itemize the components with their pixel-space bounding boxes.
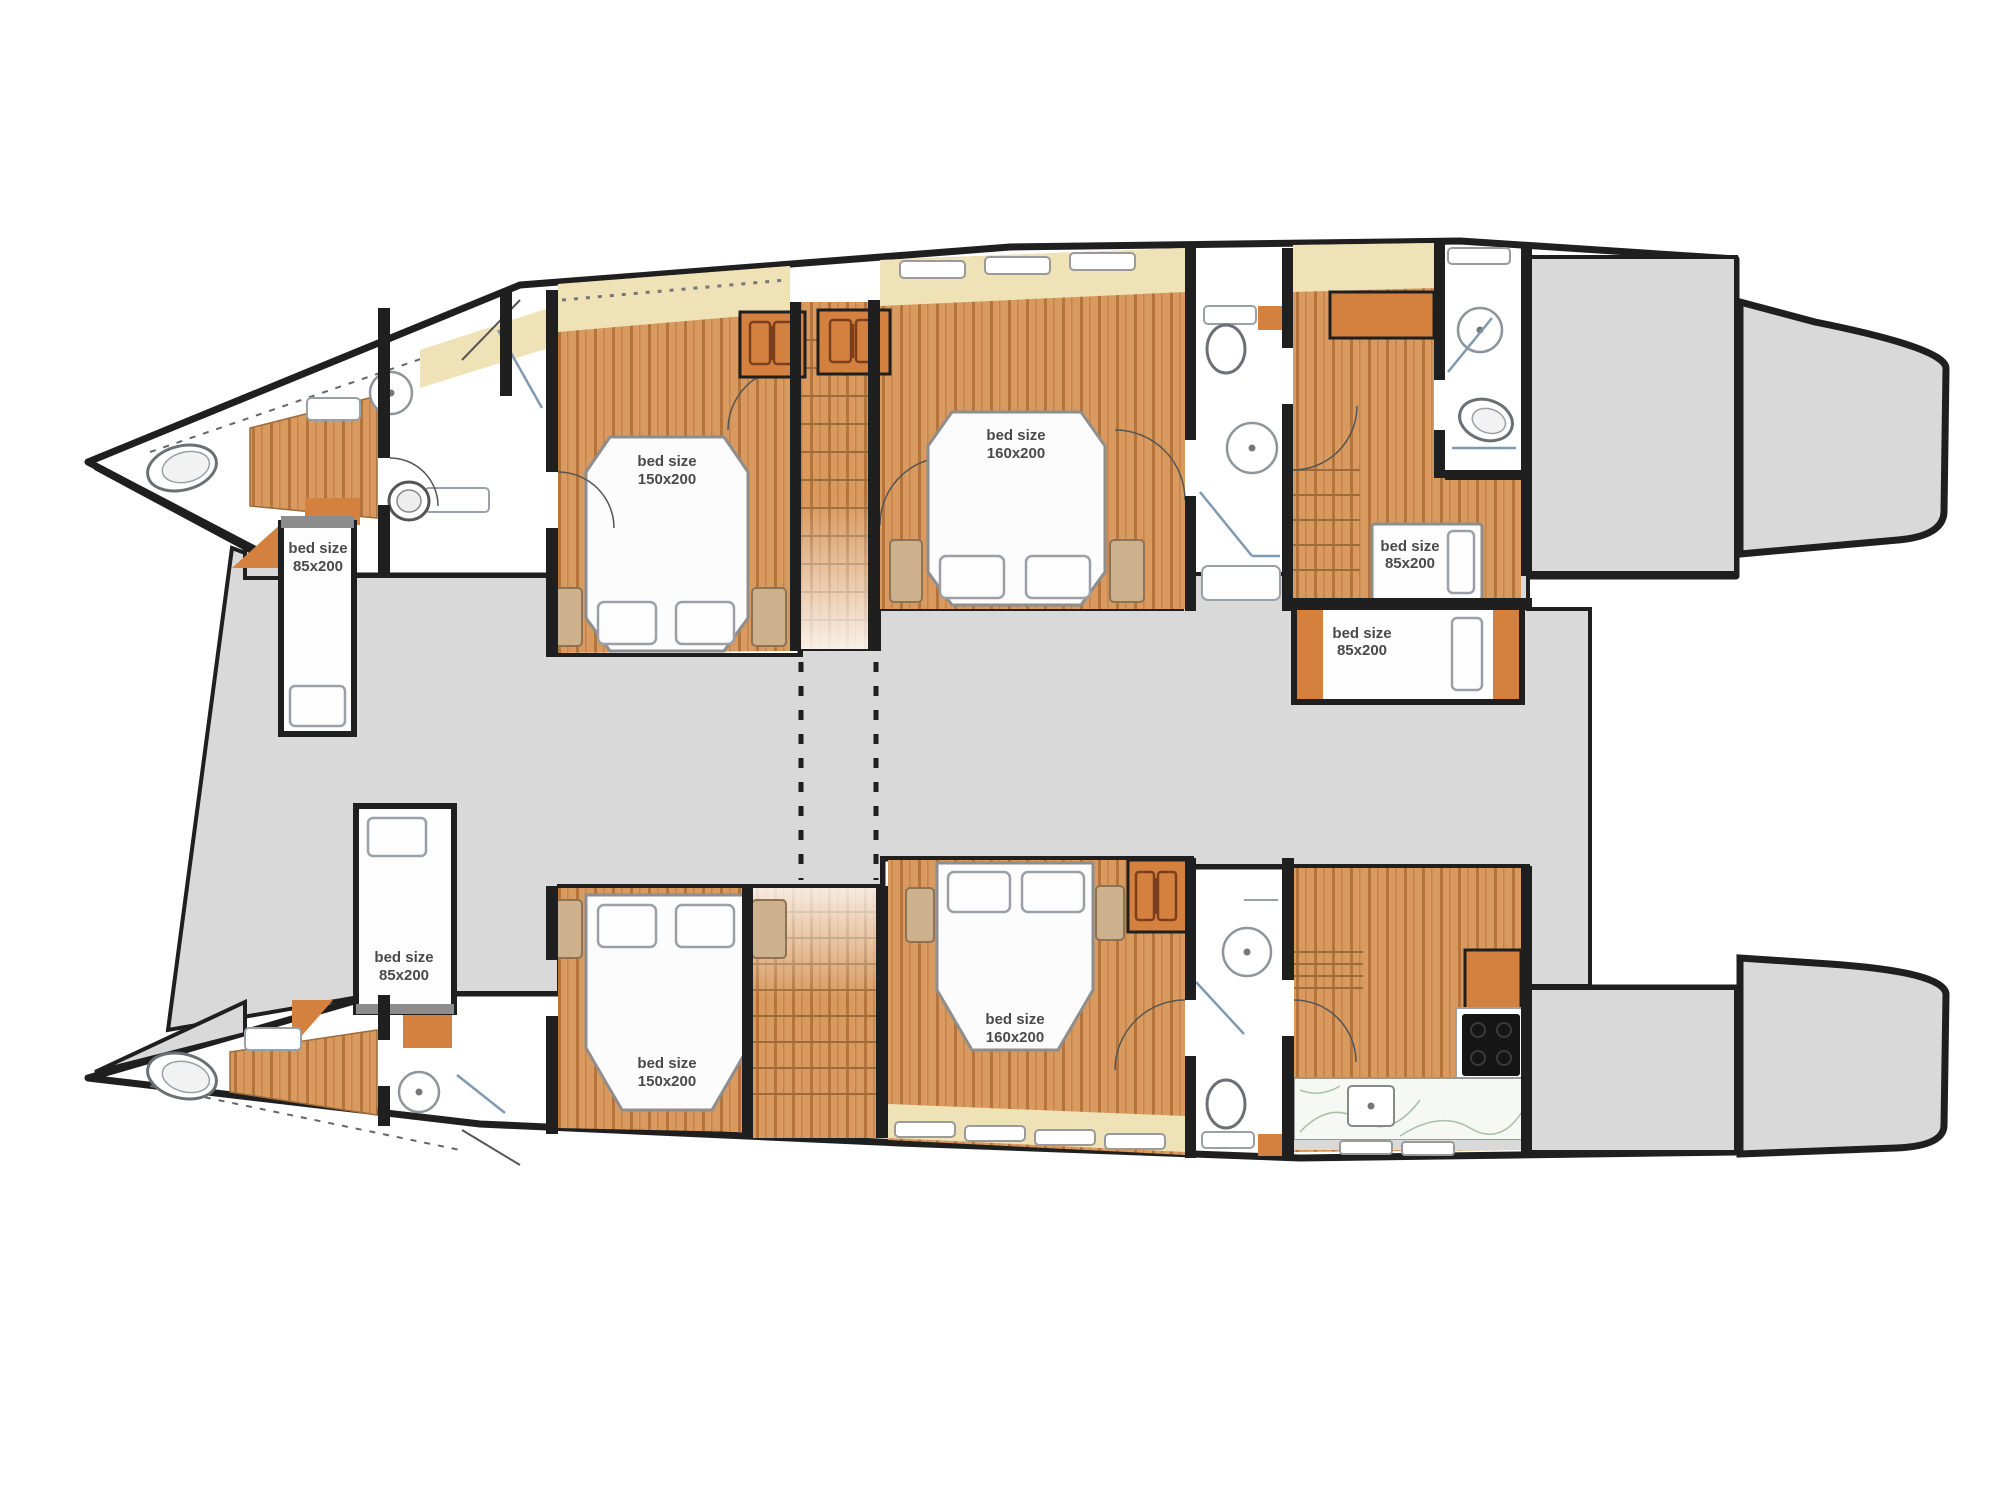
port-stairs-fade xyxy=(801,500,868,649)
stbd-wardrobe-aft xyxy=(1128,860,1188,932)
bed-size-label: bed size xyxy=(1380,538,1439,555)
stbd-fwd-bath-shower-wall xyxy=(462,1130,520,1165)
pillow xyxy=(676,602,734,644)
bed-size-value: 85x200 xyxy=(1385,555,1435,572)
port-bow-skylight xyxy=(307,398,360,420)
nightstand xyxy=(752,900,786,958)
bed-size-value: 150x200 xyxy=(638,471,696,488)
cooktop-icon xyxy=(1462,1014,1520,1076)
sink-drain-dot xyxy=(1368,1103,1375,1110)
nightstand xyxy=(906,888,934,942)
port-bow-single-bed: bed size 85x200 xyxy=(281,516,354,734)
nightstand xyxy=(752,588,786,646)
bed-size-label: bed size xyxy=(986,427,1045,444)
stbd-bow-single-bed: bed size 85x200 xyxy=(356,806,454,1014)
galley xyxy=(1294,868,1526,1155)
bed-size-value: 85x200 xyxy=(379,967,429,984)
port-stern-wardrobe xyxy=(1330,292,1434,338)
toilet-tank xyxy=(1202,1132,1254,1148)
bed-size-label: bed size xyxy=(288,540,347,557)
bed-size-label: bed size xyxy=(985,1011,1044,1028)
nightstand xyxy=(1110,540,1144,602)
shower-tray xyxy=(1202,566,1280,600)
toilet-icon xyxy=(1207,1080,1245,1128)
bed-size-value: 85x200 xyxy=(293,558,343,575)
sink-drain-dot xyxy=(1249,445,1256,452)
pillow xyxy=(948,872,1010,912)
stbd-fwd-bath-vanity xyxy=(245,1028,301,1050)
starboard-swim-platform xyxy=(1740,958,1946,1154)
bed-size-value: 85x200 xyxy=(1337,642,1387,659)
starboard-stern-deck xyxy=(1528,988,1736,1152)
orange-cap xyxy=(1297,609,1323,699)
pillow xyxy=(368,818,426,856)
bed-size-label: bed size xyxy=(637,453,696,470)
pillow xyxy=(598,602,656,644)
catamaran-floorplan: bed size 85x200 bed size 150x200 bed siz… xyxy=(0,0,2000,1500)
port-stern-upper-single-bed: bed size 85x200 xyxy=(1372,524,1482,600)
pillow xyxy=(1448,531,1474,593)
pillow xyxy=(1022,872,1084,912)
port-stern-lower-single-bed: bed size 85x200 xyxy=(1294,606,1522,702)
port-swim-platform xyxy=(1740,302,1946,554)
nightstand xyxy=(1096,886,1124,940)
nightstand xyxy=(890,540,922,602)
port-fwd-bath-vanity xyxy=(425,488,489,512)
port-fwd-bath-toilet-icon xyxy=(389,482,429,520)
floorplan-drawing: bed size 85x200 bed size 150x200 bed siz… xyxy=(0,0,2000,1500)
pillow xyxy=(940,556,1004,598)
toilet-icon xyxy=(1207,325,1245,373)
windows xyxy=(1448,248,1510,264)
orange-locker xyxy=(1258,306,1285,330)
sink-drain-dot xyxy=(1244,949,1251,956)
pillow xyxy=(1026,556,1090,598)
galley-orange-cabinet xyxy=(1465,950,1521,1010)
pillow xyxy=(598,905,656,947)
bed-size-label: bed size xyxy=(1332,625,1391,642)
port-stern-deck xyxy=(1528,257,1736,573)
bed-size-value: 160x200 xyxy=(987,445,1045,462)
sink-drain-dot xyxy=(416,1089,423,1096)
bed-size-label: bed size xyxy=(374,949,433,966)
port-stern-cabin-sill xyxy=(1293,243,1434,292)
orange-cap xyxy=(1493,609,1519,699)
pillow xyxy=(1452,618,1482,690)
toilet-tank xyxy=(1204,306,1256,324)
orange-locker xyxy=(1258,1134,1284,1156)
bed-size-label: bed size xyxy=(637,1055,696,1072)
bed-size-value: 160x200 xyxy=(986,1029,1044,1046)
pillow xyxy=(676,905,734,947)
bed-size-value: 150x200 xyxy=(638,1073,696,1090)
